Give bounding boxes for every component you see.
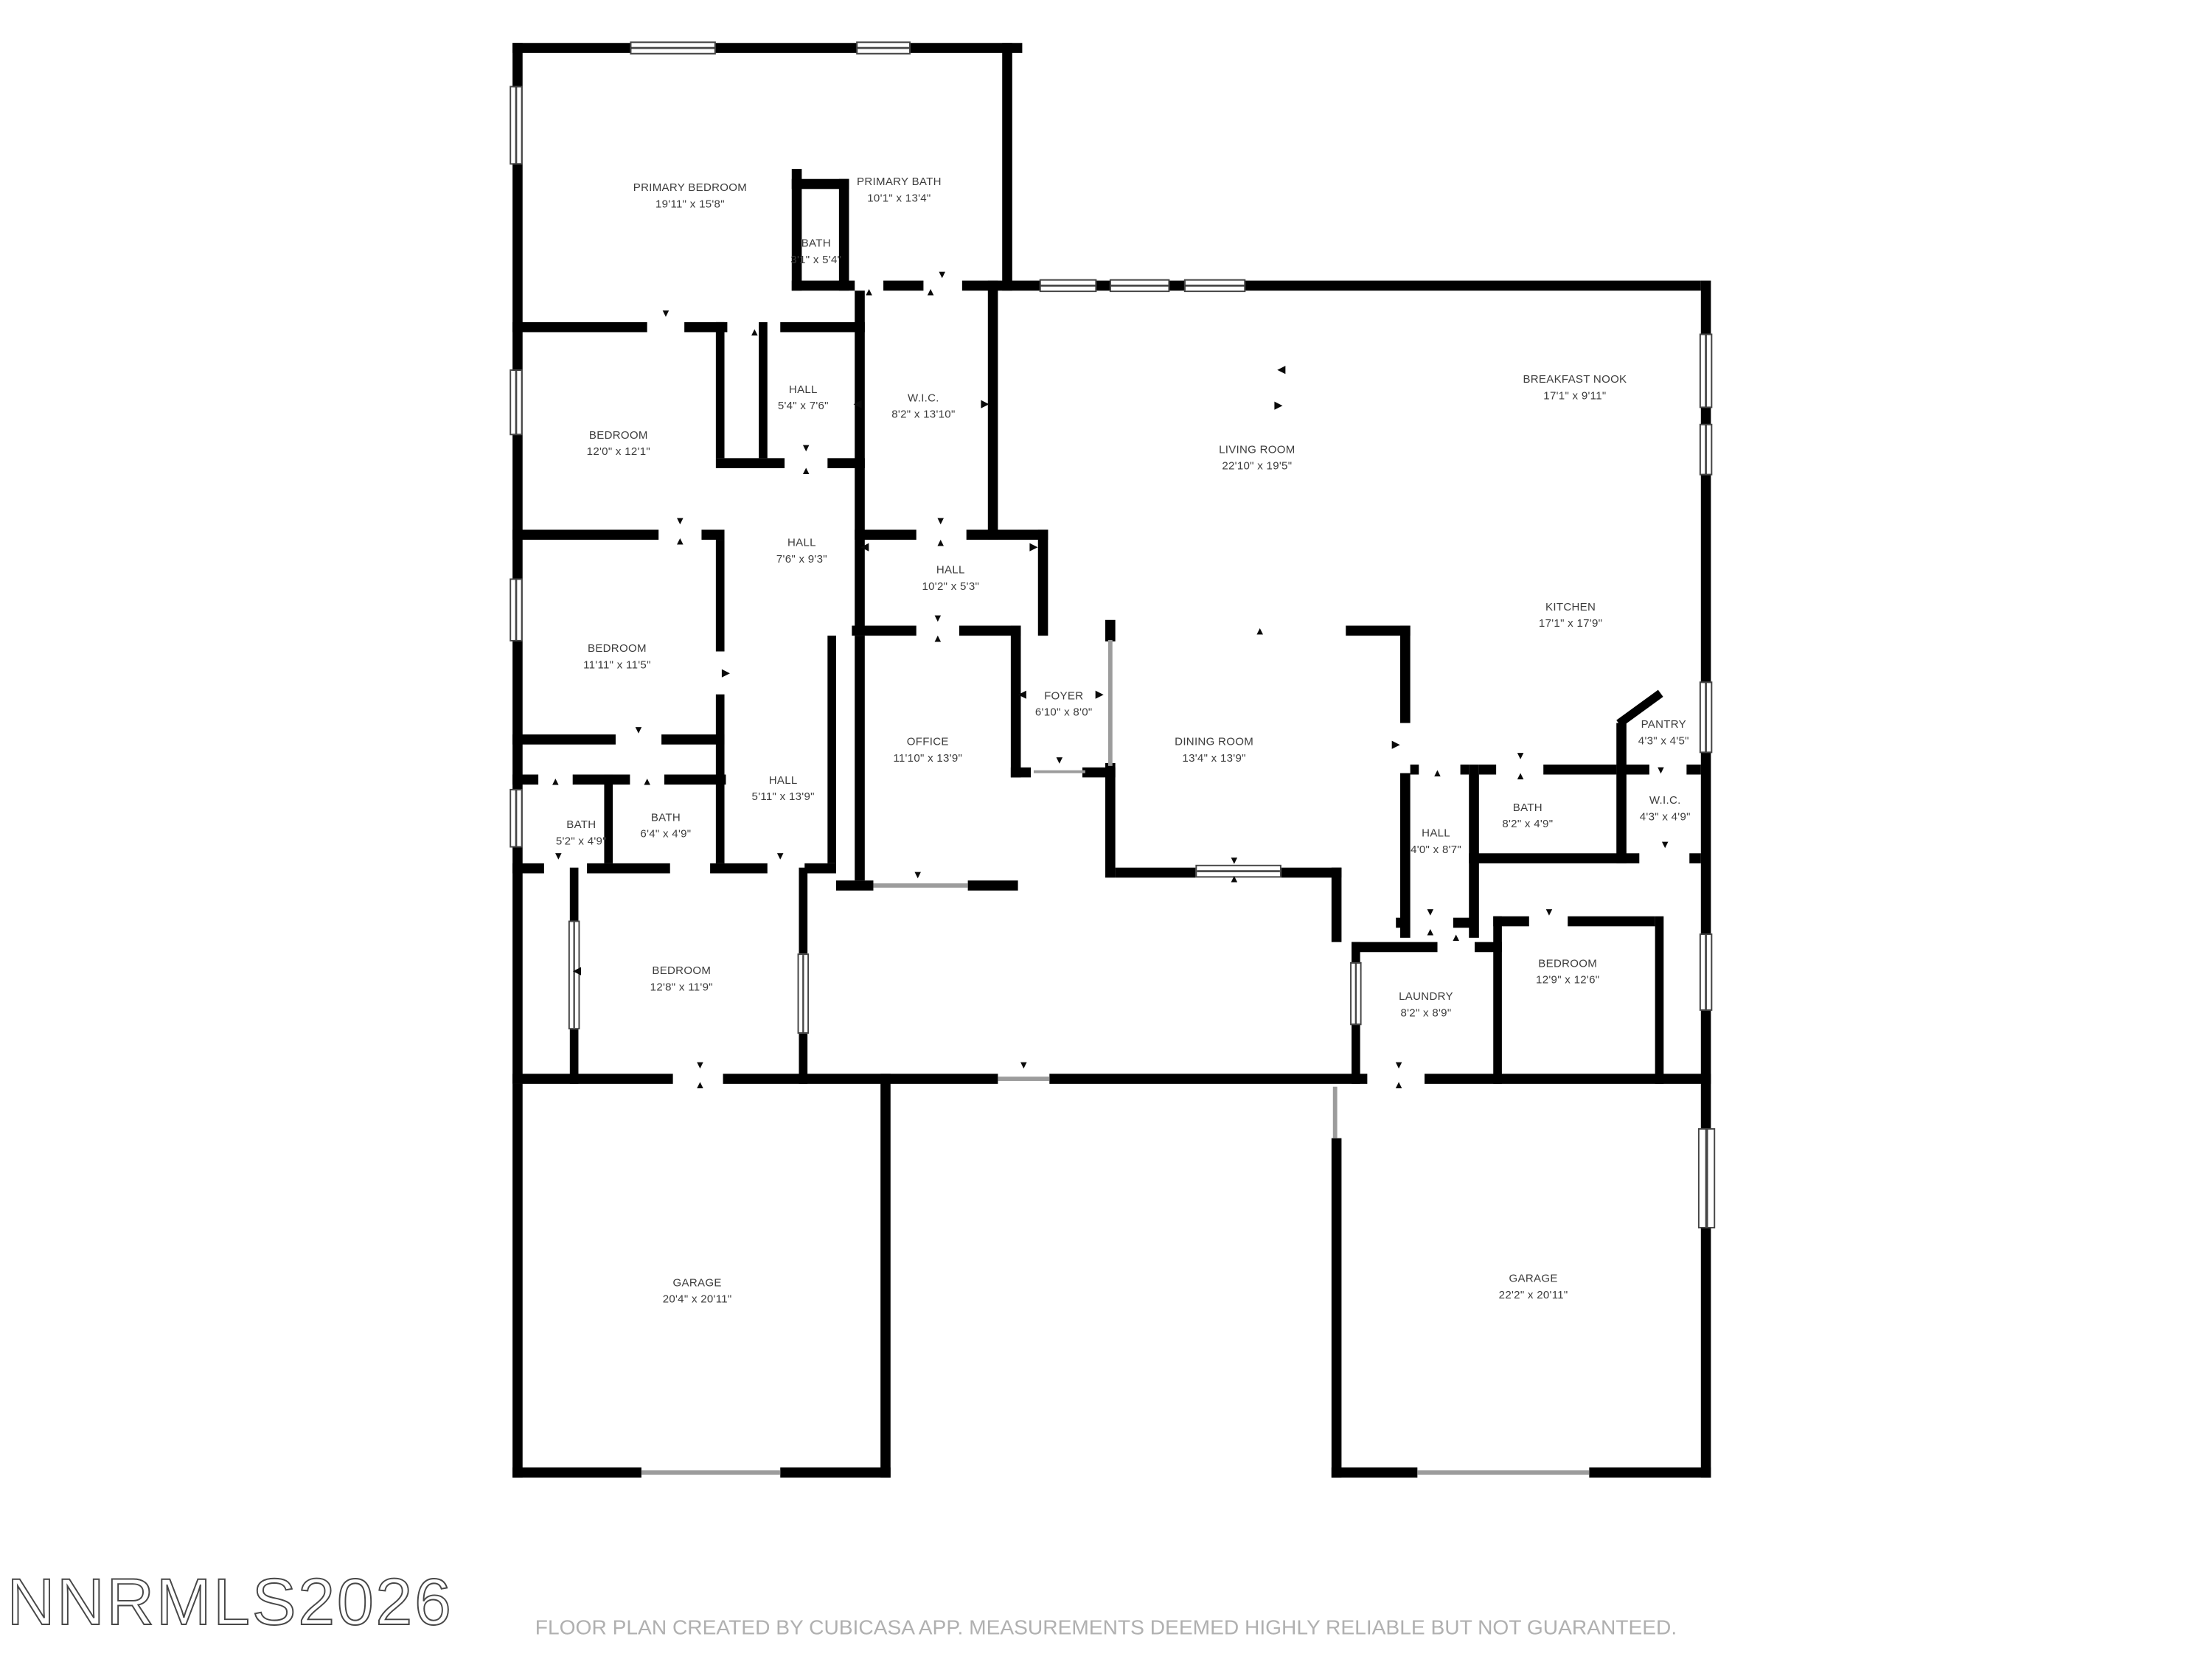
door-opening [1417,1470,1589,1475]
room-name: FOYER [1035,688,1093,705]
room-dimensions: 12'9" x 12'6" [1536,972,1599,989]
wall-segment [1105,763,1116,877]
door-opening [641,1470,780,1475]
room-name: BEDROOM [650,963,713,980]
room-name: OFFICE [893,734,962,751]
wall-segment [1082,768,1116,778]
wall-segment [512,1084,523,1478]
room-dimensions: 8'2" x 13'10" [891,406,955,423]
wall-segment [883,281,923,291]
wall-segment [1332,1138,1342,1478]
room-label: PANTRY4'3" x 4'5" [1638,717,1689,750]
room-dimensions: 13'4" x 13'9" [1175,750,1253,767]
wall-segment [1469,853,1639,863]
room-dimensions: 22'10" x 19'5" [1219,458,1295,475]
wall-segment [664,774,726,785]
wall-segment [1011,626,1021,778]
window [1350,962,1362,1025]
room-name: BEDROOM [587,427,650,444]
wall-segment [780,1467,891,1478]
wall-segment [1568,917,1655,927]
room-name: W.I.C. [891,390,955,407]
room-label: HALL7'6" x 9'3" [776,535,827,568]
wall-segment [1105,620,1116,641]
room-dimensions: 5'11" x 13'9" [752,789,815,806]
wall-segment [1352,942,1438,953]
room-label: HALL5'11" x 13'9" [752,772,815,805]
wall-segment [710,863,768,874]
door-swing-icon: ▼ [936,516,946,527]
room-label: LIVING ROOM22'10" x 19'5" [1219,442,1295,475]
door-opening [998,1077,1049,1081]
room-label: W.I.C.4'3" x 4'9" [1640,793,1691,826]
window [630,41,716,54]
wall-segment [1493,917,1529,927]
wall-segment [880,1074,891,1478]
room-name: KITCHEN [1539,599,1602,616]
wall-segment [1011,768,1031,778]
room-dimensions: 4'0" x 8'7" [1411,842,1461,859]
door-swing-icon: ▲ [695,1080,705,1091]
door-swing-icon: ◀ [860,541,869,552]
room-label: OFFICE11'10" x 13'9" [893,734,962,767]
room-label: BEDROOM12'8" x 11'9" [650,963,713,996]
room-name: BATH [790,235,841,252]
wall-segment [967,529,1048,540]
wall-segment [1493,917,1502,1084]
door-swing-icon: ◀ [573,965,581,976]
room-name: HALL [1411,825,1461,842]
wall-segment [804,863,836,874]
window [798,953,810,1034]
room-dimensions: 4'3" x 4'5" [1638,733,1689,750]
wall-segment [1396,918,1408,928]
wall-segment [570,868,579,921]
wall-segment [1038,529,1048,636]
window [509,86,522,165]
door-swing-icon: ▼ [675,516,685,527]
wall-segment [1616,723,1627,772]
door-swing-icon: ▼ [695,1060,705,1071]
window [1700,681,1712,753]
wall-segment [827,458,864,468]
room-dimensions: 20'4" x 20'11" [663,1291,732,1308]
wall-segment [716,458,785,468]
door-swing-icon: ▶ [981,398,989,409]
wall-segment [723,1074,998,1084]
room-name: PRIMARY BATH [857,174,942,191]
room-name: BATH [1502,799,1553,816]
room-name: BEDROOM [583,641,651,658]
room-dimensions: 3'1" x 5'4" [790,252,841,269]
room-name: LAUNDRY [1399,989,1453,1006]
room-label: DINING ROOM13'4" x 13'9" [1175,734,1253,767]
wall-segment [1589,1467,1711,1478]
wall-segment [1425,1074,1711,1084]
window [1698,1128,1715,1228]
door-swing-icon: ◀ [854,398,862,409]
wall-segment [855,529,916,540]
wall-segment [512,322,647,333]
room-label: HALL4'0" x 8'7" [1411,825,1461,858]
door-swing-icon: ▶ [1096,689,1104,700]
room-name: LIVING ROOM [1219,442,1295,459]
door-swing-icon: ▼ [633,725,644,736]
door-swing-icon: ▲ [925,287,936,298]
wall-segment [1400,773,1411,938]
door-swing-icon: ▼ [1394,1060,1404,1071]
room-label: W.I.C.8'2" x 13'10" [891,390,955,423]
room-label: HALL10'2" x 5'3" [922,562,979,595]
room-dimensions: 17'1" x 17'9" [1539,616,1602,633]
door-swing-icon: ▲ [641,776,652,787]
room-dimensions: 4'3" x 4'9" [1640,809,1691,826]
door-swing-icon: ▼ [1660,839,1670,850]
door-swing-icon: ▶ [722,667,730,678]
wall-segment [512,529,658,540]
door-opening [1333,1087,1338,1138]
room-dimensions: 8'2" x 8'9" [1399,1005,1453,1022]
door-swing-icon: ▲ [933,633,943,644]
room-dimensions: 10'2" x 5'3" [922,578,979,595]
door-swing-icon: ▲ [801,466,811,477]
door-swing-icon: ▼ [661,308,671,319]
room-label: BATH5'2" x 4'9" [556,817,607,850]
room-name: BATH [556,817,607,834]
window [1110,279,1170,292]
wall-segment [1469,765,1479,938]
wall-segment [1332,868,1342,942]
wall-segment [792,281,855,291]
wall-segment [512,1467,641,1478]
room-name: BEDROOM [1536,956,1599,973]
room-name: GARAGE [1499,1270,1568,1287]
door-swing-icon: ▲ [1451,933,1461,944]
room-label: LAUNDRY8'2" x 8'9" [1399,989,1453,1022]
door-swing-icon: ▲ [1425,927,1436,938]
room-dimensions: 6'4" x 4'9" [640,826,691,843]
wall-segment [855,636,865,880]
door-opening [1108,640,1113,766]
door-swing-icon: ▼ [936,270,947,281]
room-dimensions: 12'0" x 12'1" [587,444,650,461]
door-swing-icon: ▲ [1432,768,1442,779]
room-dimensions: 5'4" x 7'6" [778,398,829,415]
wall-segment [512,734,616,745]
disclaimer-text: FLOOR PLAN CREATED BY CUBICASA APP. MEAS… [0,1616,2212,1640]
door-swing-icon: ▼ [1425,907,1436,918]
door-swing-icon: ▲ [550,776,560,787]
door-swing-icon: ▼ [1018,1060,1029,1071]
wall-segment [1400,626,1411,723]
room-dimensions: 12'8" x 11'9" [650,979,713,996]
wall-segment [701,529,724,540]
door-swing-icon: ▼ [801,442,811,453]
room-name: W.I.C. [1640,793,1691,810]
room-dimensions: 11'10" x 13'9" [893,750,962,767]
window [1700,933,1712,1011]
door-swing-icon: ▼ [1515,751,1526,762]
door-swing-icon: ▶ [1029,541,1037,552]
room-label: BEDROOM12'0" x 12'1" [587,427,650,460]
door-swing-icon: ▼ [553,851,563,862]
wall-segment [1543,765,1616,775]
door-swing-icon: ▶ [1392,739,1400,750]
door-swing-icon: ▼ [1229,855,1239,866]
room-dimensions: 10'1" x 13'4" [857,190,942,207]
wall-segment [1686,765,1700,775]
room-name: PRIMARY BEDROOM [633,179,747,196]
room-label: GARAGE22'2" x 20'11" [1499,1270,1568,1304]
wall-segment [512,774,538,785]
room-name: BREAKFAST NOOK [1523,372,1627,389]
wall-segment [1116,868,1196,878]
door-swing-icon: ▶ [1274,400,1282,411]
wall-segment [1002,43,1012,291]
wall-segment [1655,917,1664,1084]
window [1040,279,1097,292]
room-label: FOYER6'10" x 8'0" [1035,688,1093,721]
room-name: HALL [752,772,815,789]
wall-segment [827,636,836,863]
wall-segment [1689,853,1701,863]
wall-segment [716,540,725,651]
door-swing-icon: ▼ [912,869,922,880]
room-label: BATH8'2" x 4'9" [1502,799,1553,832]
wall-segment [1049,1074,1367,1084]
window [1700,333,1712,408]
wall-segment [1616,772,1627,863]
door-swing-icon: ▲ [863,287,874,298]
wall-segment [968,880,1018,891]
door-swing-icon: ▼ [1054,755,1065,766]
wall-segment [661,734,724,745]
room-dimensions: 22'2" x 20'11" [1499,1287,1568,1304]
wall-segment [512,1074,672,1084]
room-dimensions: 6'10" x 8'0" [1035,704,1093,721]
wall-segment [799,868,807,954]
door-swing-icon: ◀ [1277,364,1285,375]
room-dimensions: 17'1" x 9'11" [1523,388,1627,405]
room-label: PRIMARY BEDROOM19'11" x 15'8" [633,179,747,212]
room-dimensions: 8'2" x 4'9" [1502,816,1553,833]
room-dimensions: 5'2" x 4'9" [556,833,607,850]
room-dimensions: 11'11" x 11'5" [583,657,651,674]
room-name: PANTRY [1638,717,1689,734]
door-swing-icon: ▲ [1229,874,1239,885]
room-label: BATH3'1" x 5'4" [790,235,841,268]
wall-segment [988,281,998,540]
room-dimensions: 7'6" x 9'3" [776,552,827,568]
wall-segment [1411,765,1419,775]
wall-segment [587,863,670,874]
door-opening [873,883,967,888]
wall-segment [716,322,725,458]
room-label: BREAKFAST NOOK17'1" x 9'11" [1523,372,1627,405]
room-label: BEDROOM11'11" x 11'5" [583,641,651,674]
room-dimensions: 19'11" x 15'8" [633,196,747,213]
room-name: HALL [776,535,827,552]
wall-segment [1461,765,1470,775]
window [509,578,522,641]
door-swing-icon: ▲ [1394,1080,1404,1091]
room-label: PRIMARY BATH10'1" x 13'4" [857,174,942,207]
window [1184,279,1245,292]
room-label: BEDROOM12'9" x 12'6" [1536,956,1599,989]
room-name: BATH [640,810,691,827]
wall-segment [1332,1467,1418,1478]
wall-segment [836,880,873,891]
wall-segment [512,43,523,1084]
door-swing-icon: ▼ [1655,765,1666,776]
door-opening [1034,771,1085,773]
room-label: BATH6'4" x 4'9" [640,810,691,843]
door-swing-icon: ▲ [936,538,946,549]
door-swing-icon: ▼ [1544,907,1554,918]
floor-plan-canvas: ▼▲▲▼▲▼▲▼▲◀▶◀▶▼▲▼▲◀▶◀▶▼▲▼▲▼▲▲▼▶▼▼▶▲▼▲▼▼▼▲… [0,0,2212,1659]
wall-segment [512,43,1022,53]
room-name: GARAGE [663,1275,732,1292]
door-swing-icon: ▲ [675,536,685,547]
window [509,789,522,848]
door-swing-icon: ▲ [1515,771,1526,782]
door-swing-icon: ◀ [1018,689,1026,700]
window [509,369,522,435]
wall-segment [852,626,916,636]
window [1700,424,1712,476]
room-label: KITCHEN17'1" x 17'9" [1539,599,1602,632]
wall-segment [759,322,768,458]
door-swing-icon: ▲ [749,327,759,338]
wall-segment [1479,765,1496,775]
room-name: HALL [922,562,979,579]
door-swing-icon: ▼ [775,851,785,862]
room-label: HALL5'4" x 7'6" [778,381,829,414]
window [856,41,911,54]
wall-segment [573,774,630,785]
door-swing-icon: ▼ [933,613,943,625]
wall-segment [780,322,865,333]
room-name: DINING ROOM [1175,734,1253,751]
wall-segment [512,863,544,874]
room-label: GARAGE20'4" x 20'11" [663,1275,732,1308]
door-swing-icon: ▲ [1255,626,1265,637]
wall-segment [1453,918,1478,928]
room-name: HALL [778,381,829,398]
